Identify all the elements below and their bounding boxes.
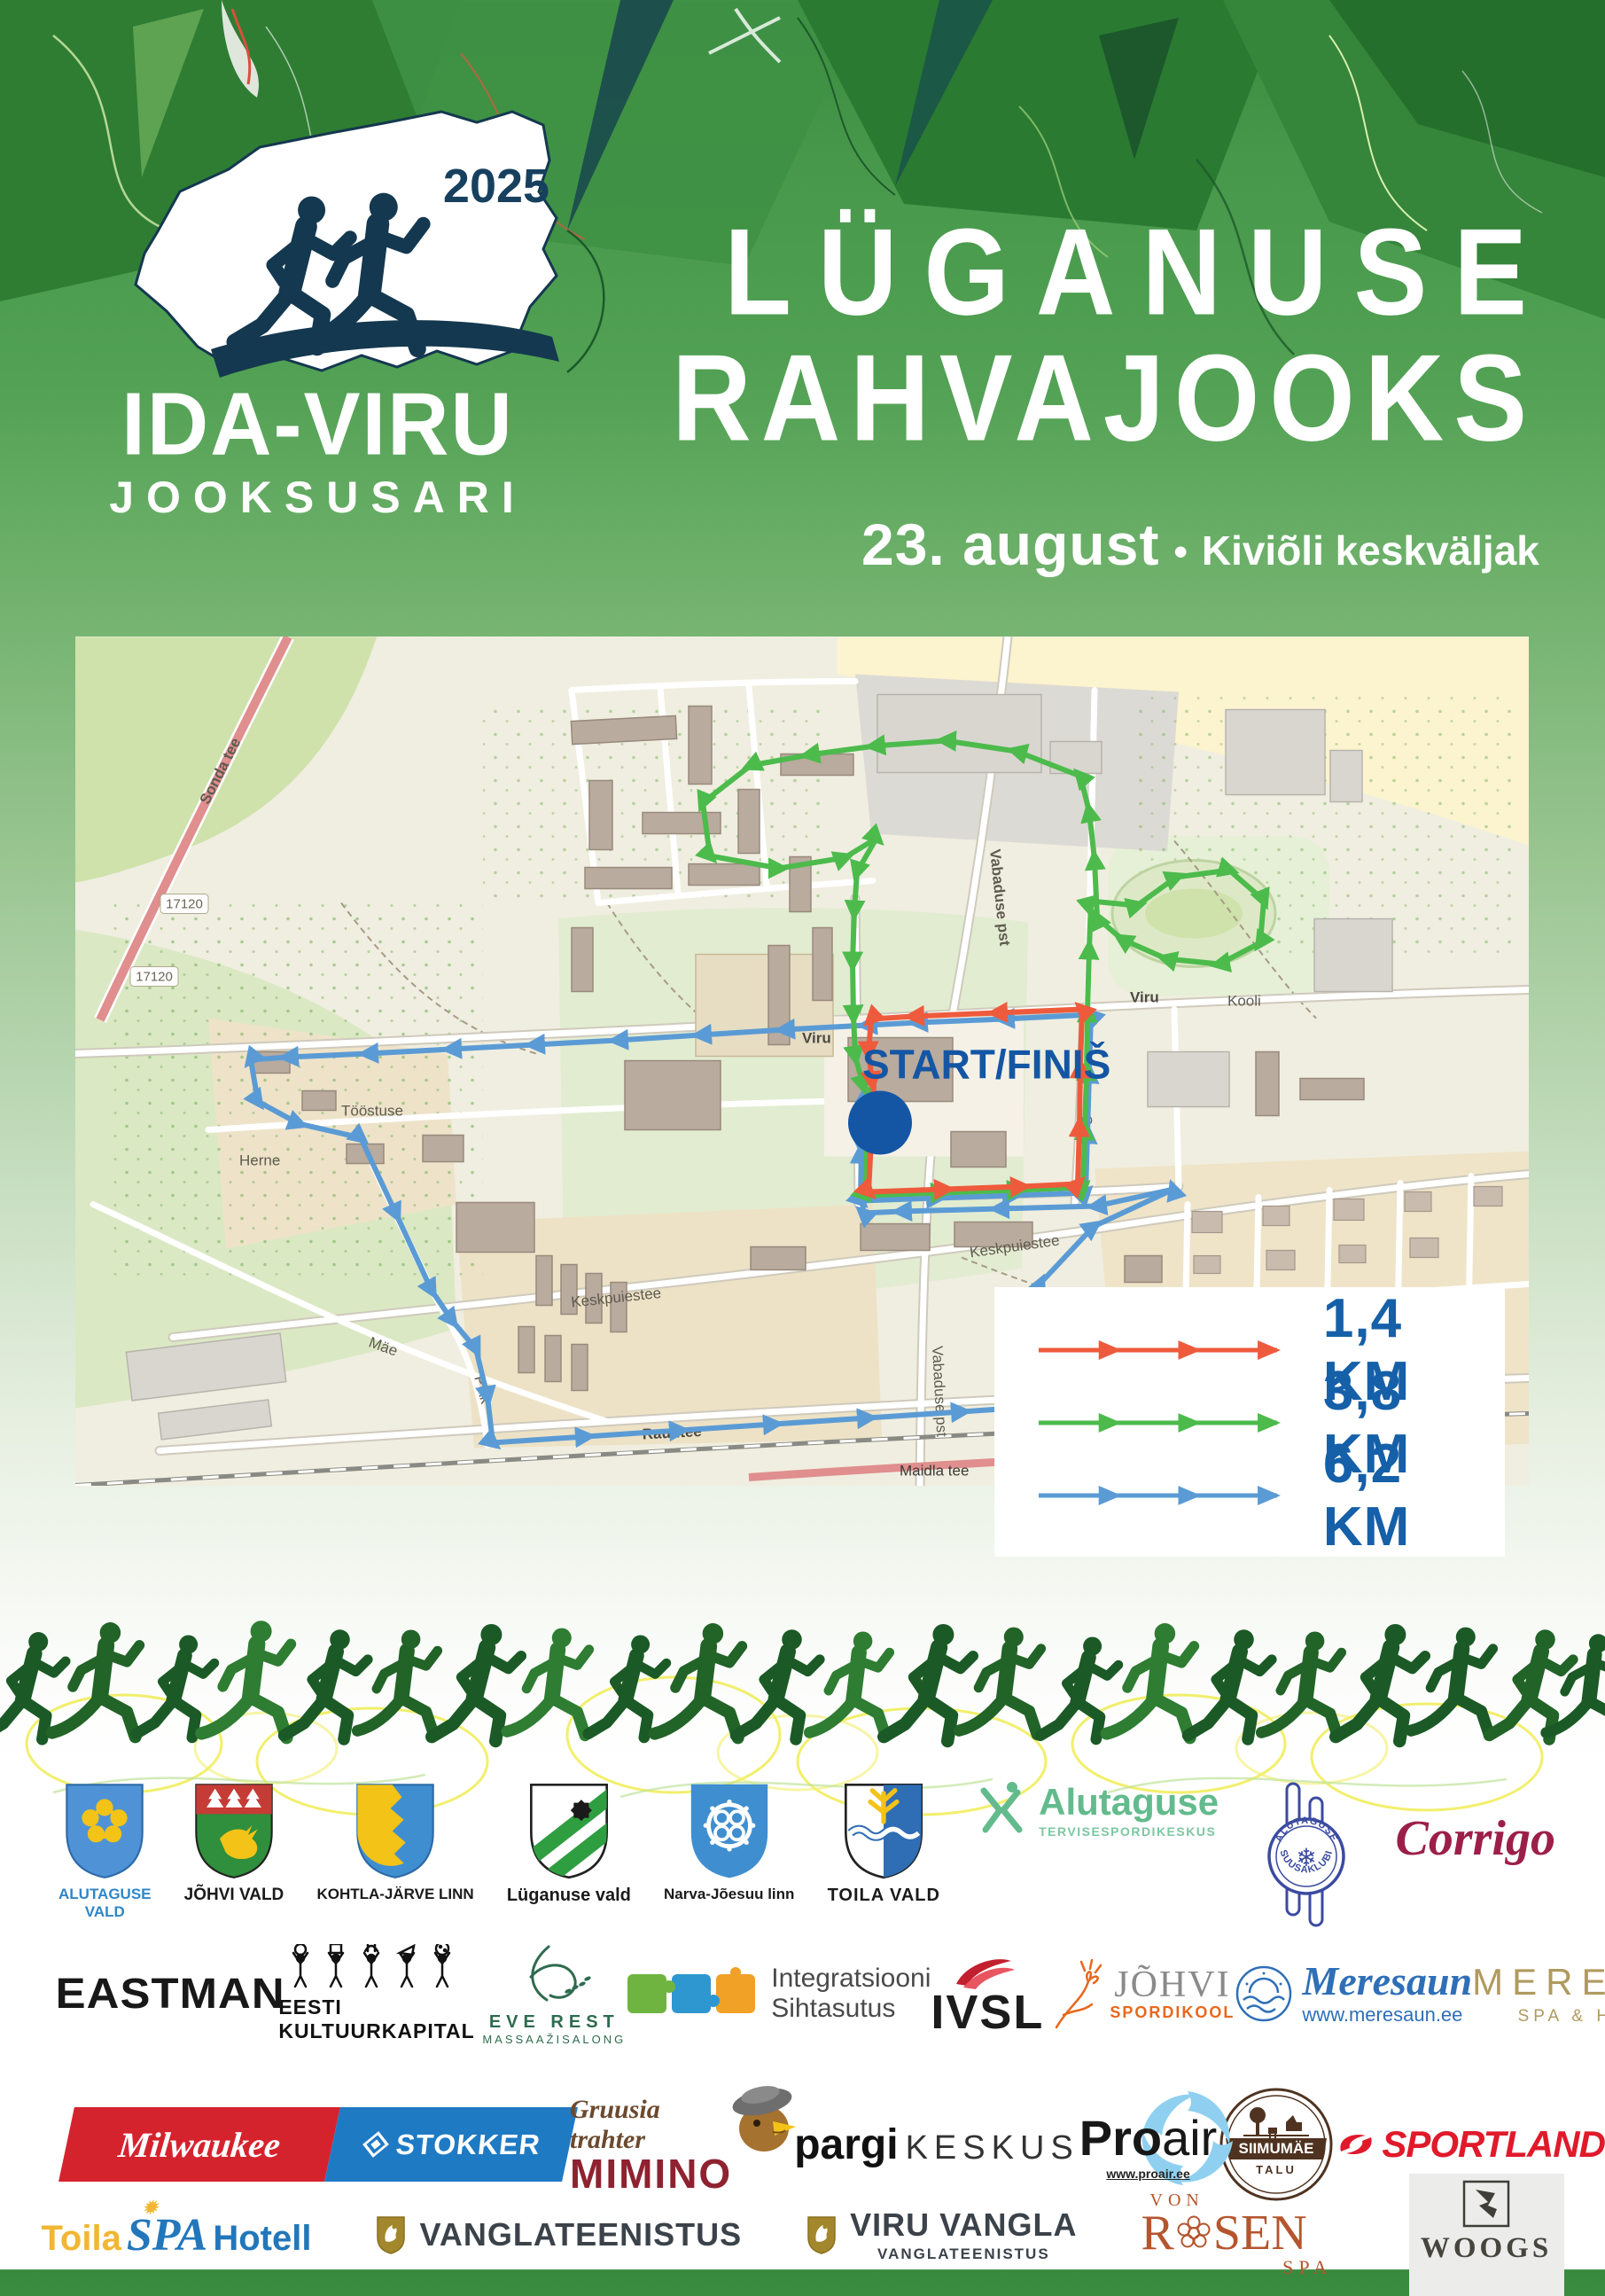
toila-shield-icon (839, 1780, 928, 1879)
route-legend: 1,4 KM 3,8 KM 6,2 KM (994, 1287, 1505, 1557)
logo-johvi-spordikool: JÕHVI SPORDIKOOL (1044, 1956, 1235, 2031)
sponsor-row-municipalities: ALUTAGUSE VALD JÕHVI VALD KOHTLA-JÄRVE L… (58, 1780, 1555, 1929)
legend-label: 6,2 KM (1323, 1433, 1505, 1558)
deer-lineart-icon (1044, 1956, 1102, 2031)
green-arrow-icon (1032, 1407, 1297, 1439)
svg-text:Herne: Herne (239, 1152, 280, 1169)
race-poster: { "poster": { "year": "2025", "series": … (0, 0, 1605, 2269)
logo-toila-spa-hotell: Toila ✹SPA Hotell (41, 2209, 311, 2261)
logo-eve-rest: EVE REST MASSAAŽISALONG (482, 1941, 626, 2046)
event-date: 23. august (861, 511, 1159, 578)
logo-ivsl: IVSL (931, 1954, 1044, 2034)
gold-shield-lion-icon (806, 2214, 838, 2255)
logo-eastman: EASTMAN (62, 1970, 278, 2019)
logo-alutaguse-vald: ALUTAGUSE VALD (58, 1780, 152, 1920)
stokker-diamond-icon (359, 2131, 391, 2158)
sea-sauna-icon (1235, 1964, 1293, 2023)
woogs-mark-icon (1461, 2179, 1511, 2229)
skier-icon (973, 1780, 1030, 1842)
logo-toila-vald: TOILA VALD (828, 1780, 940, 1906)
label: Integratsiooni (771, 1964, 931, 1995)
svg-text:Viru: Viru (1130, 989, 1159, 1006)
lyganuse-shield-icon (525, 1780, 613, 1879)
svg-text:17120: 17120 (136, 970, 173, 985)
logo-meresuu: MERESUU SPA & HOTEL (1472, 1961, 1605, 2027)
sun-icon: ✹ (143, 2197, 158, 2219)
logo-sportland: SPORTLAND (1336, 2123, 1605, 2166)
logo-viru-vangla: VIRU VANGLA VANGLATEENISTUS (806, 2206, 1077, 2263)
svg-text:17120: 17120 (166, 897, 203, 912)
sponsor-row-2: EASTMAN EESTI KULTUURKAPITAL EVE RE (62, 1941, 1552, 2046)
logo-narva-joesuu-linn: Narva-Jõesuu linn (664, 1780, 794, 1903)
logo-integratsiooni-sihtasutus: Integratsiooni Sihtasutus (626, 1964, 931, 2025)
kohtla-jarve-shield-icon (351, 1780, 440, 1879)
logo-proair: Pro air www.proair.ee (1079, 2109, 1218, 2181)
event-title-line1: LÜGANUSE (672, 211, 1554, 334)
johvi-shield-icon (190, 1780, 278, 1879)
logo-pargi-keskus: pargi KESKUS (794, 2120, 1079, 2169)
caption: ALUTAGUSE (58, 1886, 152, 1902)
svg-text:Viru: Viru (802, 1030, 831, 1047)
caption: VALD (85, 1903, 125, 1920)
blue-arrow-icon (1032, 1480, 1297, 1511)
event-title-line2: RAHVAJOOKS (672, 337, 1537, 460)
badge-name: SIIMUMÄE (1239, 2140, 1314, 2157)
svg-text:Tööstuse: Tööstuse (341, 1103, 403, 1120)
kultuurkapital-figures-icon (278, 1944, 482, 1994)
year-label: 2025 (443, 160, 549, 213)
legend-item-6-2km: 6,2 KM (1032, 1459, 1505, 1532)
series-logo: 2025 (96, 85, 565, 391)
logo-vanglateenistus: VANGLATEENISTUS (375, 2214, 742, 2255)
snowflake-icon: ❄ (1297, 1844, 1317, 1871)
red-arrow-icon (1032, 1334, 1297, 1366)
svg-text:Kooli: Kooli (1227, 993, 1261, 1010)
logo-meresaun: Meresaun www.meresaun.ee (1235, 1961, 1472, 2027)
sportland-swoosh-icon (1336, 2127, 1376, 2162)
puzzle-icon (626, 1967, 759, 2020)
ski-club-badge-icon: ALUTAGUSE SUUSAKLUBI ❄ (1251, 1780, 1362, 1929)
logo-eesti-kultuurkapital: EESTI KULTUURKAPITAL (278, 1944, 482, 2043)
event-title: LÜGANUSE RAHVAJOOKS (672, 211, 1527, 447)
sponsor-row-4: Toila ✹SPA Hotell VANGLATEENISTUS VIRU V… (0, 2174, 1605, 2296)
event-venue: Kiviõli keskväljak (1202, 527, 1539, 574)
logo-corrigo: Corrigo (1395, 1810, 1555, 1867)
start-finish-marker (848, 1091, 912, 1155)
logo-milwaukee-stokker: Milwaukee STOKKER (66, 2107, 570, 2182)
event-date-line: 23. august • Kiviõli keskväljak (861, 511, 1539, 578)
logo-kohtla-jarve-linn: KOHTLA-JÄRVE LINN (316, 1780, 473, 1903)
alutaguse-shield-icon (60, 1780, 149, 1879)
milwaukee-block: Milwaukee (58, 2107, 340, 2182)
stokker-block: STOKKER (324, 2107, 578, 2182)
logo-lyganuse-vald: Lüganuse vald (507, 1780, 631, 1906)
spa-wordmark: ✹SPA (127, 2209, 208, 2261)
start-finish-label: START/FINIŠ (862, 1042, 1110, 1088)
eagle-mascot-icon (721, 2077, 806, 2162)
bullet-separator: • (1173, 530, 1187, 574)
gold-shield-lion-icon (375, 2214, 407, 2255)
logo-johvi-vald: JÕHVI VALD (184, 1780, 284, 1905)
series-title-line1: IDA-VIRU (76, 374, 559, 475)
logo-alutaguse-suusaklubi: ALUTAGUSE SUUSAKLUBI ❄ (1251, 1780, 1362, 1929)
label: Sihtasutus (771, 1994, 931, 2025)
series-title-line2: JOOKSUSARI (76, 472, 559, 523)
narva-joesuu-shield-icon (685, 1780, 774, 1879)
rose-icon (1174, 2214, 1213, 2253)
logo-von-rosen-spa: VON R SEN SPA (1141, 2191, 1345, 2278)
svg-text:Maidla tee: Maidla tee (900, 1463, 969, 1480)
logo-alutaguse-tervisespordikeskus: Alutaguse TERVISESPORDIKESKUS (973, 1780, 1219, 1842)
eve-rest-monogram-icon (513, 1941, 595, 2011)
logo-woogs: WOOGS (1409, 2174, 1564, 2296)
